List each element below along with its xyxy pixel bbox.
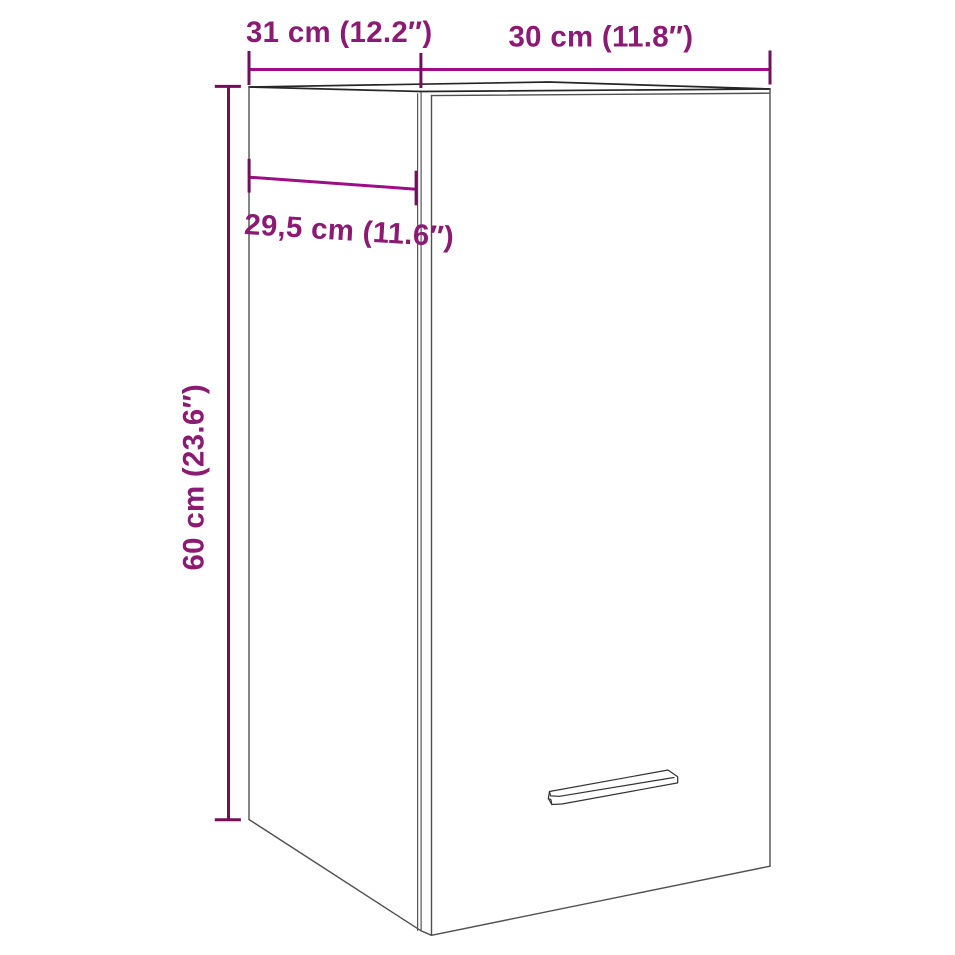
svg-text:30 cm (11.8″): 30 cm (11.8″) [509, 20, 694, 53]
svg-text:60 cm (23.6″): 60 cm (23.6″) [178, 384, 211, 571]
svg-text:31 cm (12.2″): 31 cm (12.2″) [246, 16, 433, 49]
